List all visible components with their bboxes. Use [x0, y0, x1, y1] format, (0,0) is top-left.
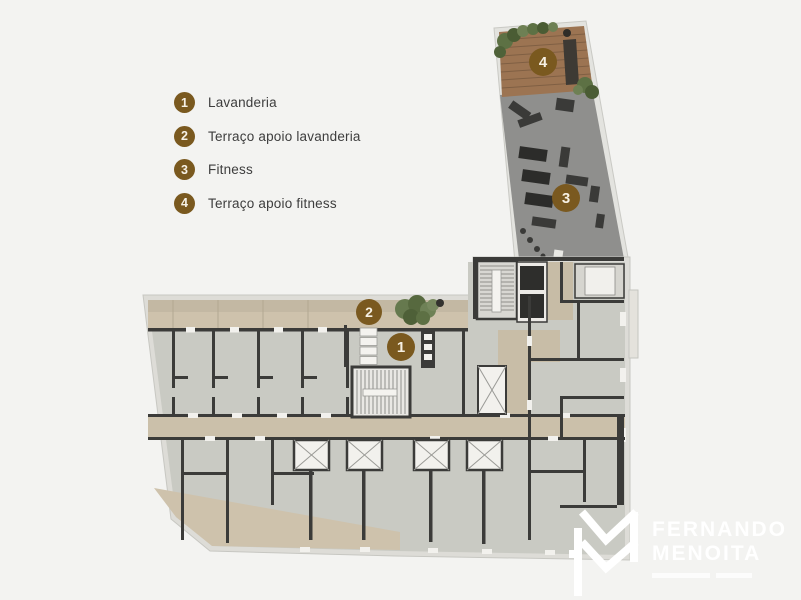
legend-item-terraco-fitness: 4 Terraço apoio fitness [174, 193, 361, 214]
logo-tagline-bar [652, 573, 710, 578]
fm-monogram-icon [568, 504, 642, 600]
legend-badge-2: 2 [174, 126, 195, 147]
marker-1-number: 1 [397, 339, 405, 356]
legend-item-fitness: 3 Fitness [174, 159, 361, 180]
legend-label-1: Lavanderia [208, 95, 277, 110]
marker-2: 2 [356, 299, 382, 325]
fitness-terrace-wing [494, 21, 629, 263]
legend-label-3: Fitness [208, 162, 253, 177]
legend-label-4: Terraço apoio fitness [208, 196, 337, 211]
legend-item-lavanderia: 1 Lavanderia [174, 92, 361, 113]
elevator-shaft [520, 294, 544, 318]
logo-tagline [652, 573, 787, 578]
legend-badge-1: 1 [174, 92, 195, 113]
floor-plan-poster: 1 2 3 4 1 Lavanderia 2 Terraço apoio lav… [0, 0, 801, 600]
marker-2-number: 2 [365, 304, 373, 320]
legend: 1 Lavanderia 2 Terraço apoio lavanderia … [174, 92, 361, 226]
logo-name-line1: FERNANDO [652, 518, 787, 542]
logo-name-line2: MENOITA [652, 542, 787, 566]
marker-4-number: 4 [539, 54, 548, 71]
legend-badge-3: 3 [174, 159, 195, 180]
central-corridor [148, 417, 625, 437]
brand-logo: FERNANDO MENOITA [568, 504, 787, 600]
legend-badge-4: 4 [174, 193, 195, 214]
marker-3-number: 3 [562, 190, 570, 207]
legend-item-terraco-lavanderia: 2 Terraço apoio lavanderia [174, 126, 361, 147]
logo-tagline-bar [716, 573, 752, 578]
marker-4: 4 [529, 48, 557, 76]
logo-text: FERNANDO MENOITA [652, 518, 787, 578]
marker-3: 3 [552, 184, 580, 212]
main-floor-plan [143, 257, 638, 560]
legend-label-2: Terraço apoio lavanderia [208, 129, 361, 144]
marker-1: 1 [387, 333, 415, 361]
right-balcony-bump [629, 290, 638, 358]
elevator-shaft [520, 266, 544, 290]
stair-core-a [352, 367, 410, 417]
